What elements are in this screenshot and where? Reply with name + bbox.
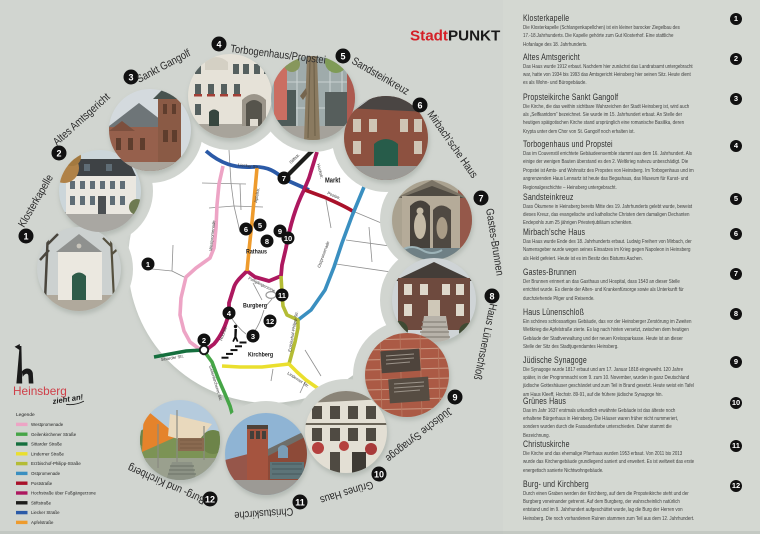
svg-text:6: 6 — [244, 225, 248, 234]
svg-text:8: 8 — [489, 291, 494, 301]
svg-text:3: 3 — [251, 332, 255, 341]
svg-text:1: 1 — [146, 260, 150, 269]
svg-text:9: 9 — [278, 227, 282, 236]
svg-text:StadtPUNKT: StadtPUNKT — [410, 28, 501, 45]
svg-text:Kirchberg: Kirchberg — [248, 352, 273, 359]
svg-text:Sittarder Straße: Sittarder Straße — [31, 442, 63, 447]
svg-text:1: 1 — [23, 231, 28, 241]
svg-text:2: 2 — [56, 148, 61, 158]
svg-text:11: 11 — [295, 497, 305, 507]
svg-text:12: 12 — [266, 317, 274, 326]
svg-text:Erzbischof-Philipp-Straße: Erzbischof-Philipp-Straße — [31, 461, 81, 466]
svg-text:7: 7 — [282, 174, 286, 183]
svg-text:Apfelstraße: Apfelstraße — [31, 520, 54, 525]
svg-text:Geilenkirchener Straße: Geilenkirchener Straße — [31, 432, 77, 437]
svg-text:10: 10 — [374, 469, 384, 479]
svg-text:7: 7 — [478, 193, 483, 203]
svg-text:8: 8 — [265, 237, 269, 246]
svg-text:Ostpromenade: Ostpromenade — [31, 471, 61, 476]
svg-text:5: 5 — [258, 221, 262, 230]
svg-text:9: 9 — [452, 392, 457, 402]
svg-text:3: 3 — [128, 72, 133, 82]
svg-text:Liecker Straße: Liecker Straße — [31, 510, 60, 515]
svg-text:10: 10 — [284, 234, 292, 243]
svg-text:Hochstraße über Fußgängerzone: Hochstraße über Fußgängerzone — [31, 491, 96, 496]
svg-text:Markt: Markt — [325, 177, 341, 185]
svg-text:Rathaus: Rathaus — [246, 249, 268, 256]
svg-text:Poststraße: Poststraße — [31, 481, 53, 486]
svg-text:Legende: Legende — [16, 412, 35, 418]
svg-text:6: 6 — [417, 100, 422, 110]
svg-text:Westpromenade: Westpromenade — [31, 422, 64, 427]
svg-text:Burgberg: Burgberg — [243, 303, 267, 310]
svg-text:4: 4 — [216, 39, 221, 49]
svg-text:2: 2 — [202, 336, 206, 345]
svg-text:11: 11 — [278, 291, 286, 300]
svg-text:Linderner Straße: Linderner Straße — [31, 451, 65, 456]
svg-text:5: 5 — [340, 51, 345, 61]
svg-text:Stiftstraße: Stiftstraße — [31, 500, 52, 505]
